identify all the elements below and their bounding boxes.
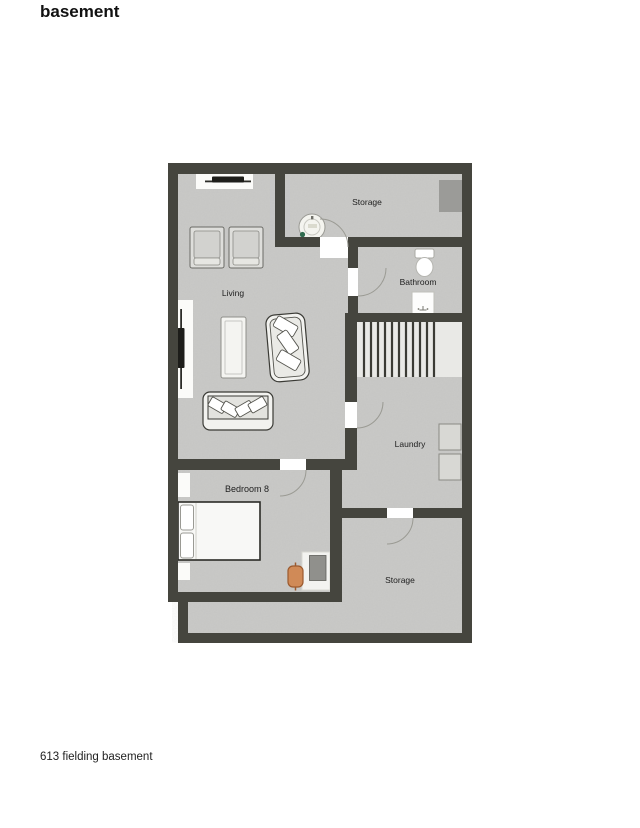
coffee-table [221, 317, 246, 378]
armchair [190, 227, 224, 268]
bed [178, 502, 260, 560]
plan-caption: 613 fielding basement [40, 751, 153, 763]
page-title: basement [40, 2, 119, 22]
page: basement [0, 0, 640, 828]
sofa [203, 392, 273, 430]
room-label-bathroom: Bathroom [400, 277, 437, 287]
stairs [357, 322, 462, 377]
room-label-laundry: Laundry [395, 439, 426, 449]
toilet-icon [415, 249, 434, 277]
dryer-icon [439, 454, 461, 480]
desk-chair [288, 563, 303, 591]
floorplan: Storage Bathroom Living Laundry Bedroom … [168, 163, 472, 643]
armchair [229, 227, 263, 268]
furnace-unit [439, 180, 462, 212]
room-label-living: Living [222, 288, 244, 298]
room-label-storage-bottom: Storage [385, 575, 415, 585]
desk [302, 552, 330, 590]
sink-icon [412, 292, 434, 316]
room-label-storage-top: Storage [352, 197, 382, 207]
bedroom-niche-upper [176, 473, 190, 497]
chaise-sofa [265, 312, 310, 382]
room-label-bedroom: Bedroom 8 [225, 484, 269, 494]
bedroom-niche-lower [176, 563, 190, 580]
washer-icon [439, 424, 461, 450]
